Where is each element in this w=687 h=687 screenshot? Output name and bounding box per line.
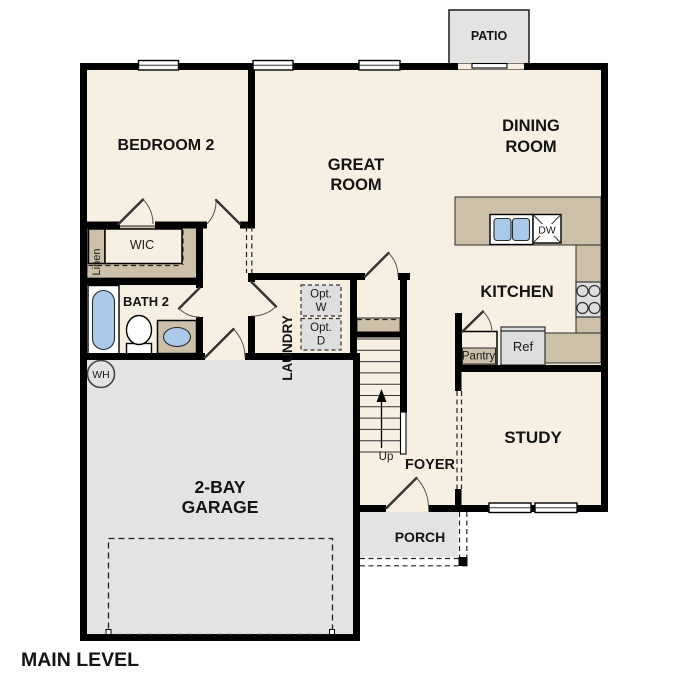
diningroom-label-line1: DINING [502,117,560,135]
dishwasher-label: DW [538,225,556,237]
linen-label: Linen [91,249,103,276]
stair-handrail [401,412,407,454]
garage-label-line2: GARAGE [182,497,259,517]
laundry-label: LAUNDRY [280,315,295,381]
refrigerator-label: Ref [513,339,534,354]
sink-basin-left-icon [494,219,511,241]
foyer-label: FOYER [405,457,455,473]
garage-entry-gap [205,353,245,360]
garage-door-corner-right [330,630,335,635]
burner-icon [577,286,588,297]
wall-foyer-study-top [455,371,462,391]
wall-right [601,63,608,512]
kitchen-counter-bottom [545,333,601,363]
garage-label-line1: 2-BAY [195,477,246,497]
porch-post [459,557,468,566]
wall-laundry-south [245,353,360,360]
wall-garage-right [353,357,360,641]
greatroom-label-line1: GREAT [328,156,385,174]
opt-washer-label-line1: Opt. [310,289,332,301]
stairs-up-label: Up [379,451,394,463]
wall-bedroom2-south-3 [240,222,255,229]
vanity-sink-icon [164,328,191,347]
pantry-label: Pantry [462,351,495,363]
patio-label: PATIO [471,29,508,43]
water-heater-label: WH [92,369,110,381]
wall-bedroom2-greatroom [248,63,255,226]
floorplan-svg: BEDROOM 2 GREAT ROOM DINING ROOM KITCHEN… [0,0,687,687]
bathtub-icon [93,291,115,350]
wall-laundry-west-top [248,273,255,282]
porch-label: PORCH [395,529,446,545]
wall-bath2-north [87,278,203,285]
study-label: STUDY [504,428,562,447]
wall-stair-closet-bar [357,332,400,338]
wall-bath-hall-south [87,353,205,360]
burner-icon [589,303,600,314]
toilet-icon [127,316,152,345]
opt-dryer-label-line2: D [317,336,325,348]
wall-stair-west [350,273,357,360]
plan-title: MAIN LEVEL [21,649,139,671]
bath2-label: BATH 2 [123,294,169,309]
wall-foyer-study-bottom [455,489,462,505]
wall-stair-east [400,273,407,413]
wall-kitchen-study [455,365,601,372]
burner-icon [589,286,600,297]
wall-left [80,63,87,641]
wall-bedroom2-south-1 [87,222,120,229]
diningroom-label-line2: ROOM [505,138,556,156]
sink-basin-right-icon [513,219,530,241]
front-door-gap [387,505,429,512]
wall-laundry-west-bottom [248,316,255,360]
floorplan-main-level: BEDROOM 2 GREAT ROOM DINING ROOM KITCHEN… [0,0,687,687]
wall-laundry-north [249,273,365,280]
kitchen-label: KITCHEN [480,283,553,301]
burner-icon [577,303,588,314]
opt-dryer-label-line1: Opt. [310,322,332,334]
greatroom-label-line2: ROOM [330,176,381,194]
opt-washer-label-line2: W [316,302,327,314]
patio-sliding-door [472,64,507,69]
bedroom2-label: BEDROOM 2 [118,137,215,154]
wic-label: WIC [130,238,154,252]
garage-door-corner-left [106,630,111,635]
